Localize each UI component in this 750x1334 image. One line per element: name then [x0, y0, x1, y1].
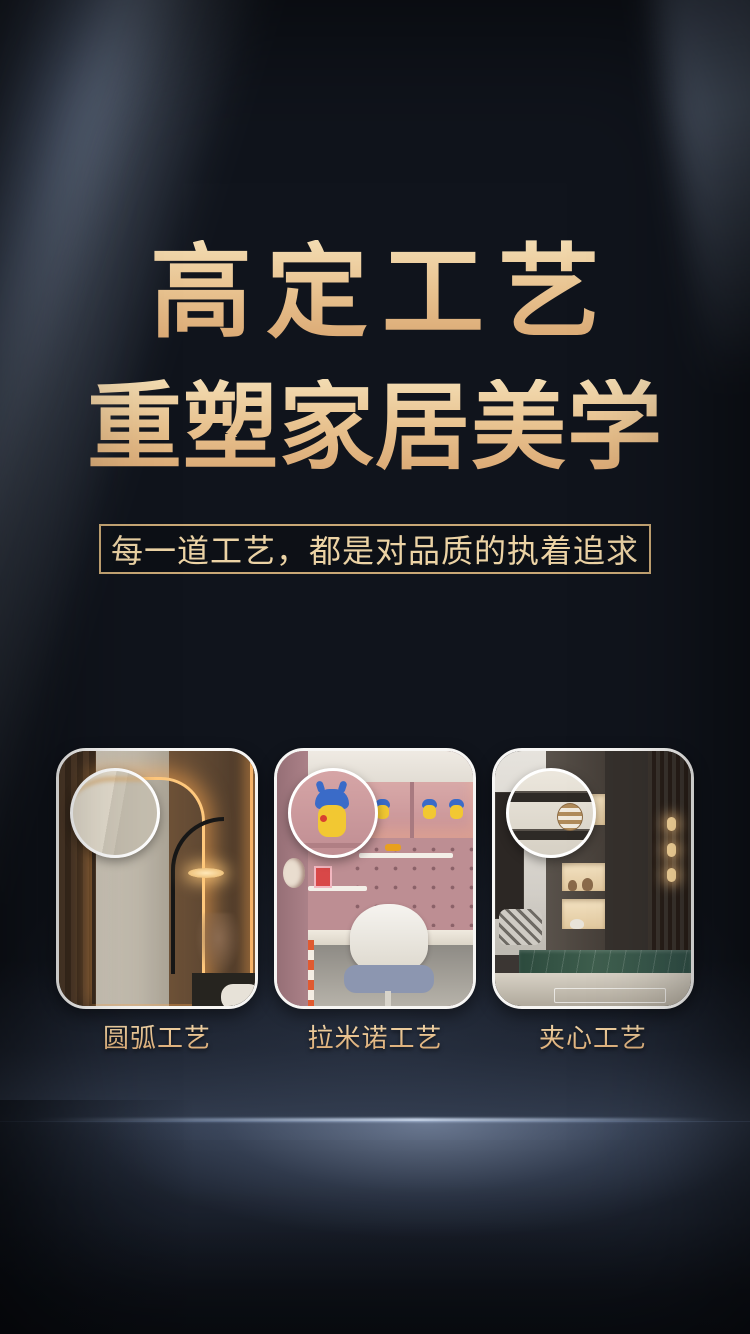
lit-niche: [562, 899, 605, 930]
craft-card-sandwich[interactable]: 夹心工艺: [492, 748, 694, 1055]
craft-photo-kids-room: [274, 748, 476, 1009]
floor-spotlight-glow: [0, 1121, 750, 1334]
floor-highlight-line: [30, 1118, 720, 1122]
felt-panel: [605, 751, 648, 960]
tagline-banner: 每一道工艺，都是对品质的执着追求: [99, 524, 651, 574]
hero-title-block: 高定工艺 重塑家居美学: [0, 240, 750, 479]
craft-photo-living-room: [492, 748, 694, 1009]
lit-niche: [562, 863, 605, 891]
patterned-sofa: [499, 909, 542, 945]
shelf-detail: [291, 843, 378, 848]
tagline-text: 每一道工艺，都是对品质的执着追求: [111, 526, 639, 572]
floor-inlay-line: [554, 988, 666, 1003]
green-marble-base: [519, 950, 691, 973]
pikachu-figure-closeup: [315, 789, 349, 837]
toy-car: [385, 844, 401, 851]
pendant-bulb: [667, 843, 676, 857]
floor-left-shadow: [0, 1100, 750, 1334]
led-strip-edge: [250, 751, 253, 996]
pikachu-figure: [422, 799, 437, 819]
hero-title-line1: 高定工艺: [14, 240, 750, 347]
sandwich-shelf-detail: [509, 829, 596, 840]
poster-page: 高定工艺 重塑家居美学 每一道工艺，都是对品质的执着追求: [0, 0, 750, 1334]
card-caption: 圆弧工艺: [56, 1018, 258, 1055]
craft-cards-row: 圆弧工艺: [0, 748, 750, 1055]
bottom-fade: [0, 1220, 750, 1334]
niche-divider: [410, 782, 414, 838]
magnifier-lens: [288, 768, 378, 858]
sandwich-shelf-detail: [509, 791, 596, 802]
magnifier-lens: [70, 768, 160, 858]
chair-post: [385, 991, 391, 1006]
dried-plant: [195, 913, 241, 975]
bed-corner: [221, 984, 258, 1009]
card-caption: 夹心工艺: [492, 1018, 694, 1055]
slat-wood-panel: [648, 751, 691, 970]
picture-book: [314, 866, 332, 888]
striped-vase: [557, 803, 583, 831]
pikachu-figure: [449, 799, 464, 819]
wall-shelf: [359, 853, 453, 858]
rounded-corner-detail: [70, 777, 160, 841]
craft-card-arc[interactable]: 圆弧工艺: [56, 748, 258, 1055]
magnifier-lens: [506, 768, 596, 858]
hero-title-line2: 重塑家居美学: [0, 379, 750, 479]
chair-back: [350, 904, 428, 973]
edge-vignette: [0, 0, 750, 1334]
chair-seat-cushion: [344, 965, 434, 993]
round-cubby: [283, 858, 305, 888]
striped-pole: [308, 940, 314, 1006]
craft-card-lamino[interactable]: 拉米诺工艺: [274, 748, 476, 1055]
craft-photo-bedroom: [56, 748, 258, 1009]
card-caption: 拉米诺工艺: [274, 1018, 476, 1055]
